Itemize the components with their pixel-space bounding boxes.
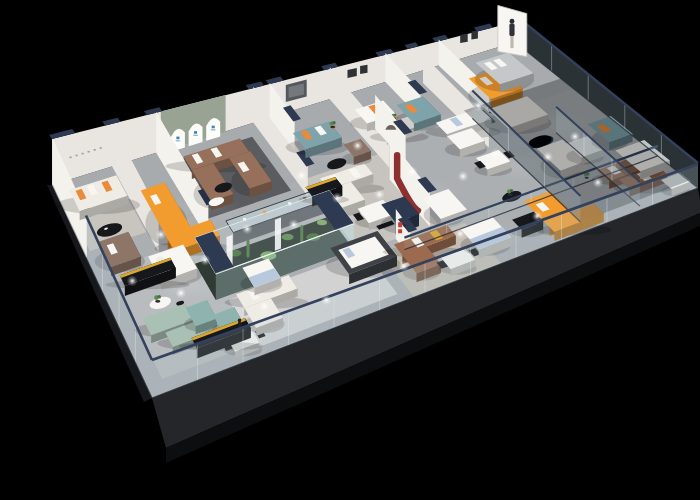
reception-standee bbox=[498, 5, 527, 56]
floorplan-svg bbox=[0, 0, 700, 500]
showroom-render bbox=[0, 0, 700, 500]
